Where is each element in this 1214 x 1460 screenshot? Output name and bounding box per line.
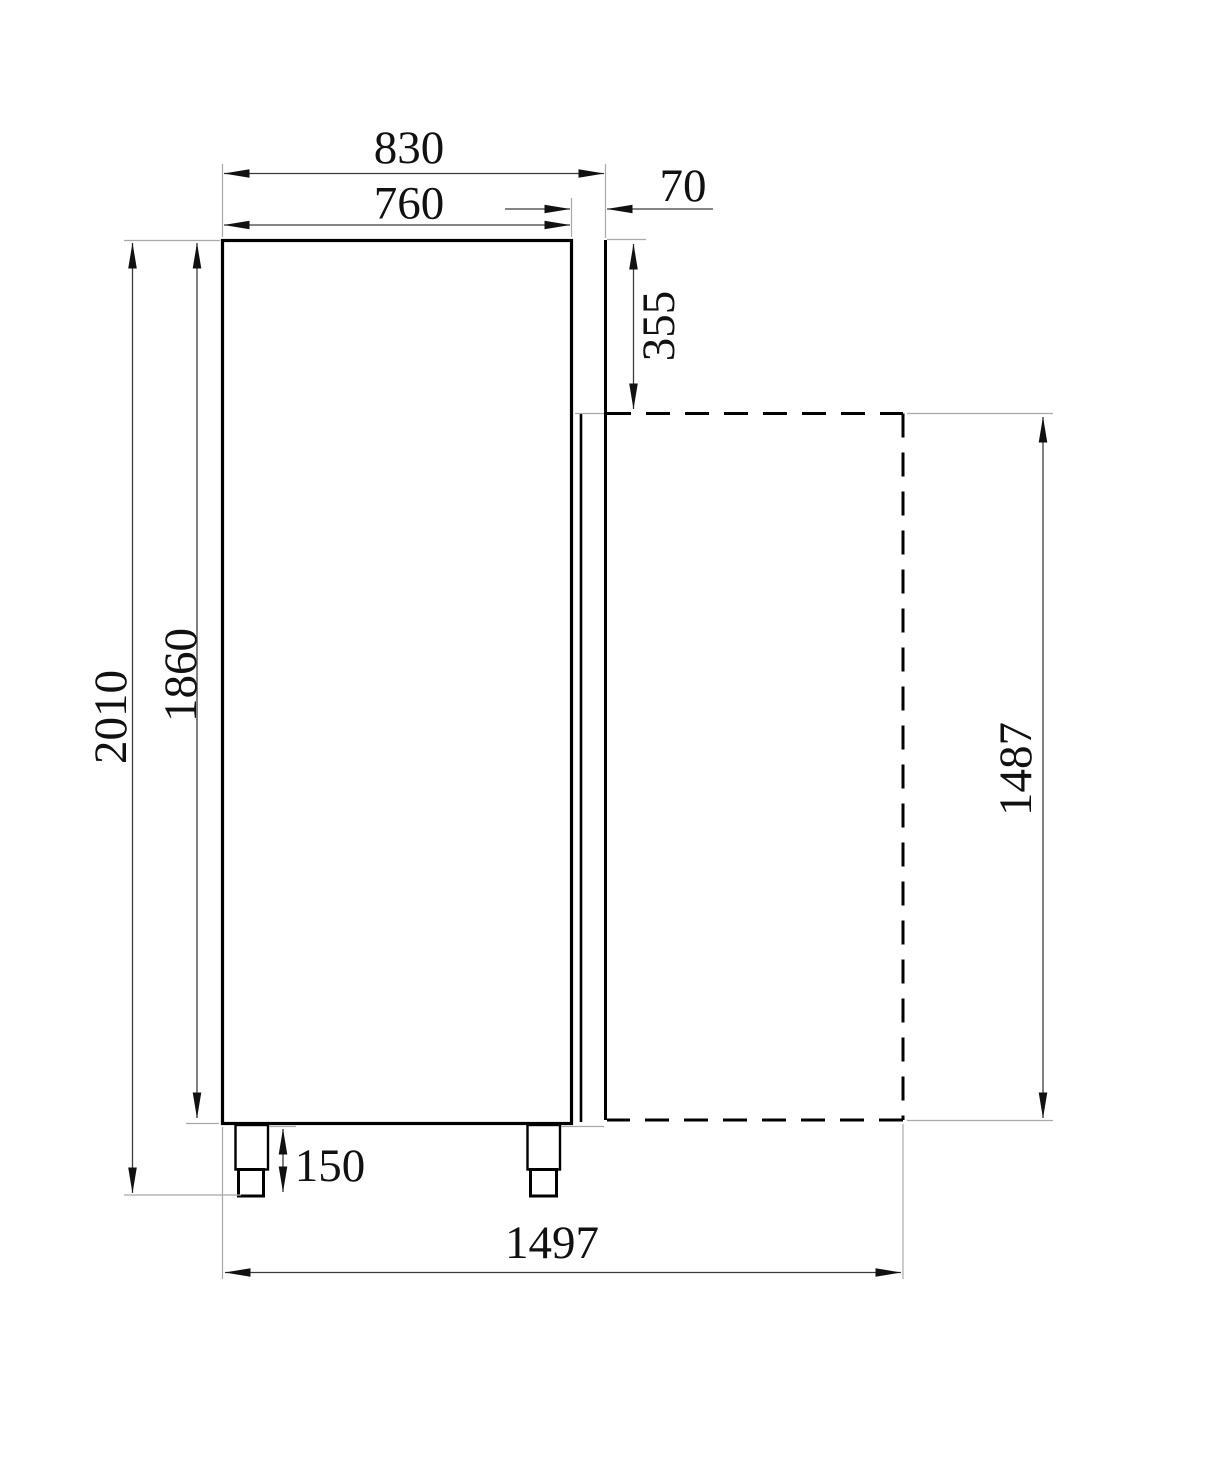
dimension-top-inner-width: 760 — [224, 178, 570, 230]
dimension-right-height: 1487 — [990, 417, 1043, 1118]
dimension-foot-height: 150 — [283, 1129, 365, 1192]
dim-label-bottom-width: 1497 — [505, 1217, 599, 1269]
foot-right — [528, 1125, 561, 1196]
dimension-top-width: 830 — [224, 122, 604, 174]
dimension-upper-right-offset: 355 — [633, 244, 685, 409]
dim-label-right-height: 1487 — [990, 722, 1042, 816]
open-door-dashed-outline — [607, 414, 903, 1121]
foot-left-upper — [236, 1125, 269, 1170]
dimension-door-thickness: 70 — [505, 160, 713, 212]
dim-label-top-inner-width: 760 — [374, 178, 445, 230]
foot-left-lower — [239, 1170, 264, 1197]
foot-right-lower — [531, 1170, 557, 1197]
cabinet-outline — [223, 241, 572, 1124]
dimensions: 830 760 70 355 2010 1860 — [85, 122, 1043, 1273]
dim-label-left-outer-height: 2010 — [85, 670, 137, 764]
foot-right-upper — [528, 1125, 561, 1170]
object-lines — [223, 240, 904, 1196]
dim-label-top-width: 830 — [374, 122, 445, 174]
dimension-bottom-width: 1497 — [225, 1217, 901, 1273]
dim-label-upper-right-offset: 355 — [633, 291, 685, 362]
dimension-left-outer-height: 2010 — [85, 243, 137, 1193]
extension-lines — [124, 164, 1053, 1279]
dim-label-foot-height: 150 — [295, 1140, 366, 1192]
foot-left — [236, 1125, 269, 1196]
dim-label-left-inner-height: 1860 — [155, 628, 207, 722]
dim-label-door-thickness: 70 — [660, 160, 707, 212]
drawing-canvas: 830 760 70 355 2010 1860 — [0, 0, 1214, 1460]
dimension-left-inner-height: 1860 — [155, 243, 207, 1118]
technical-drawing: 830 760 70 355 2010 1860 — [0, 0, 1214, 1460]
